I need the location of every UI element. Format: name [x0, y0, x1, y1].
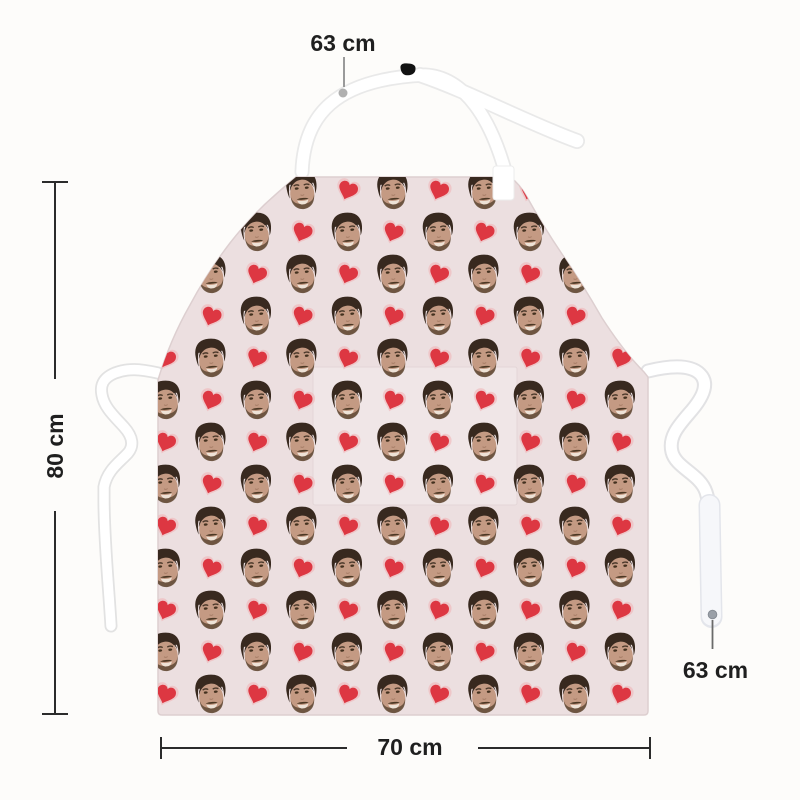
svg-text:80 cm: 80 cm — [42, 413, 68, 478]
svg-text:63 cm: 63 cm — [683, 657, 748, 683]
svg-text:63 cm: 63 cm — [310, 30, 375, 56]
svg-text:70 cm: 70 cm — [377, 734, 442, 760]
